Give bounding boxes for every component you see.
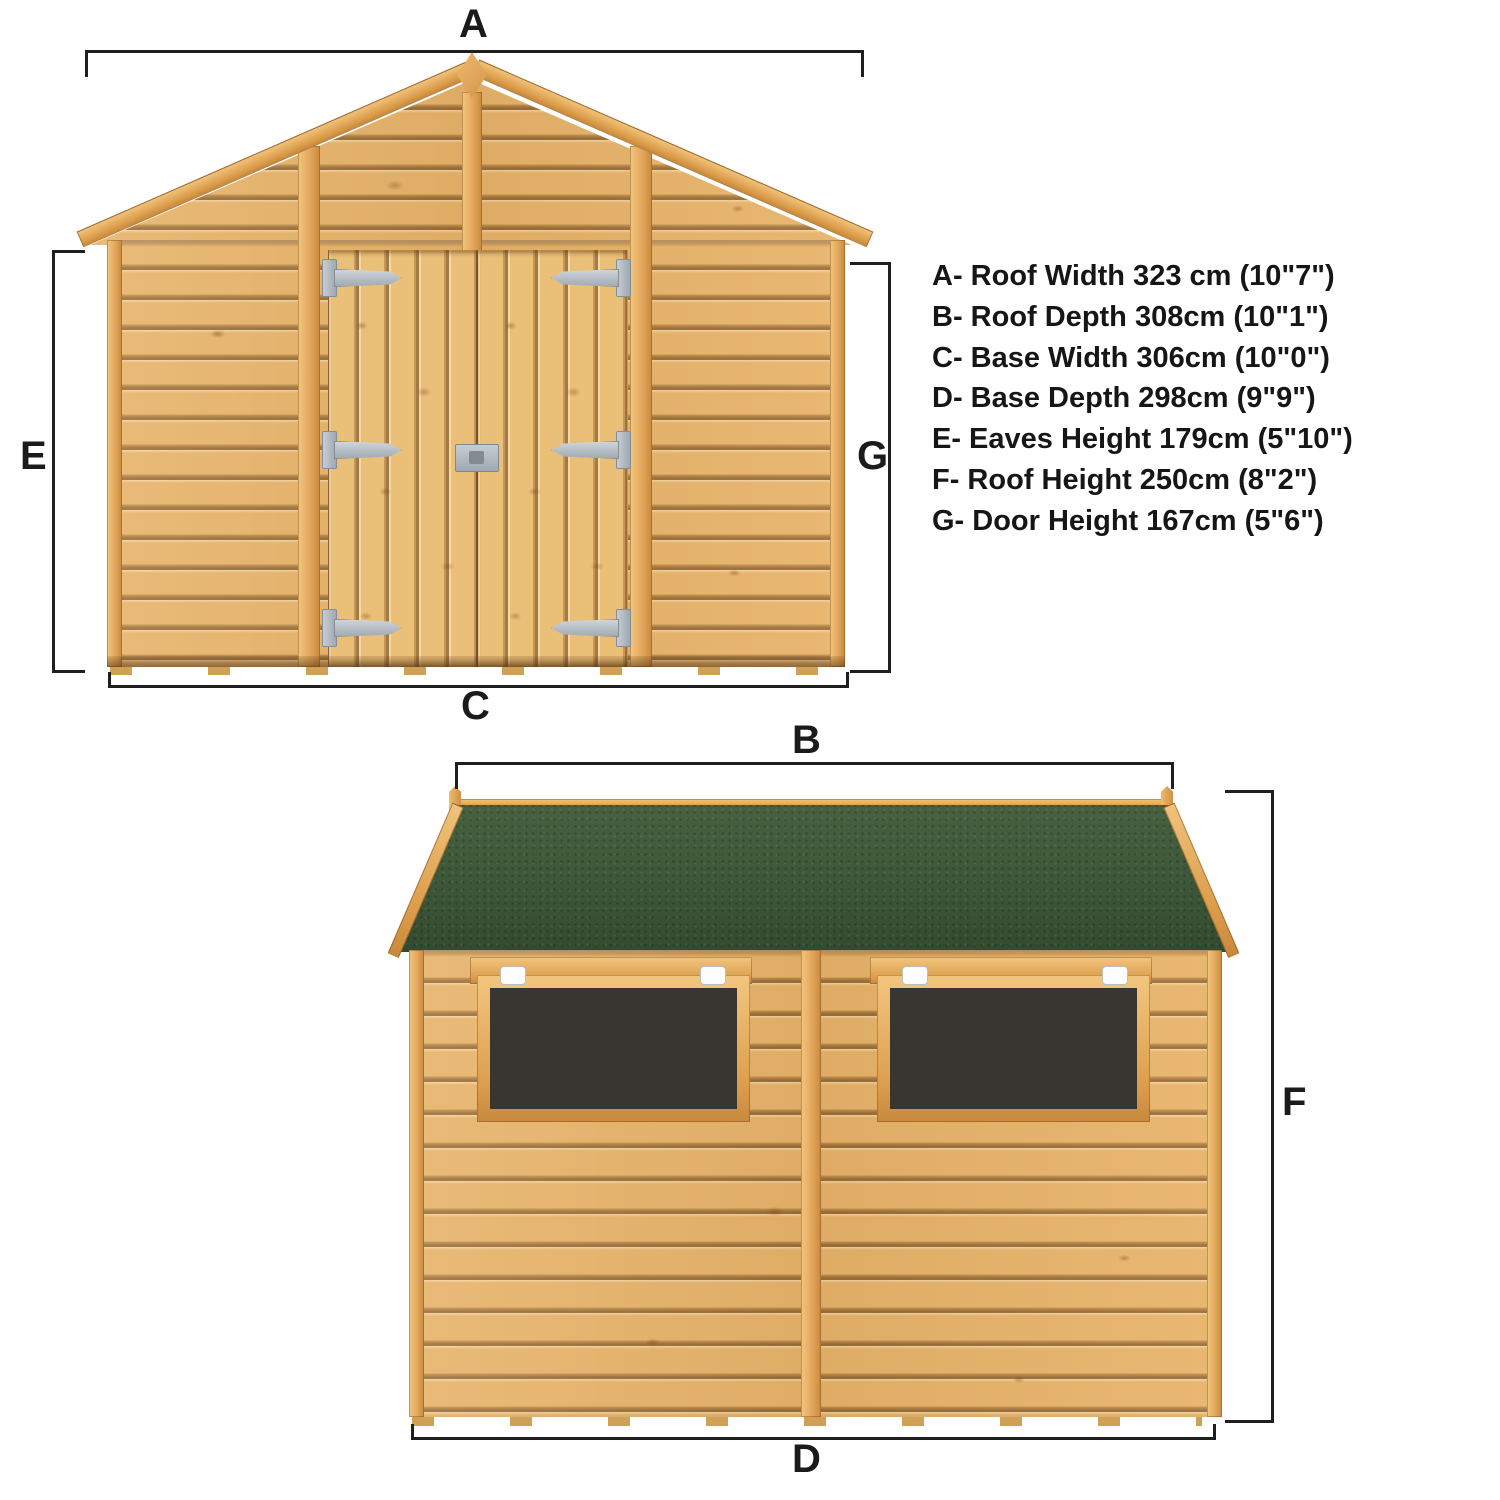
window-latch [500,966,526,985]
side-corner-trim-right [1207,950,1222,1417]
dimension-list-item: B- Roof Depth 308cm (10"1") [932,297,1353,338]
dim-label-roof-width: A [459,4,488,44]
dim-label-roof-height: F [1282,1082,1306,1122]
dimension-list-item: D- Base Depth 298cm (9"9") [932,378,1353,419]
dimension-list-item: F- Roof Height 250cm (8"2") [932,460,1353,501]
front-gable-trim-right [630,146,652,667]
dim-label-eaves-height: E [20,436,47,476]
front-corner-trim-left [107,240,122,667]
front-gable-trim-left [298,146,320,667]
hinge-strap [334,619,402,637]
window-glass-left [490,988,737,1109]
front-corner-trim-right [830,240,845,667]
window-latch [700,966,726,985]
dimension-list: A- Roof Width 323 cm (10"7") B- Roof Dep… [932,256,1353,542]
dim-label-base-depth: D [792,1439,821,1479]
dim-label-roof-depth: B [792,720,821,760]
hinge-strap [334,441,402,459]
dimension-list-item: G- Door Height 167cm (5"6") [932,501,1353,542]
side-corner-trim-left [409,950,424,1417]
dim-bracket-roof-depth [455,762,1174,789]
dimension-list-item: A- Roof Width 323 cm (10"7") [932,256,1353,297]
dim-bracket-roof-height [1225,790,1274,1423]
hinge-strap [334,269,402,287]
dimension-list-item: C- Base Width 306cm (10"0") [932,338,1353,379]
door-lock [455,444,499,472]
door-hinge [322,259,402,295]
door-hinge [551,431,631,467]
roof-felt [394,805,1231,952]
side-center-trim [801,950,821,1417]
shed-dimensions-diagram: A E G C A- Roof Width 323 cm (10"7") B- … [0,0,1500,1500]
lock-keep [469,451,484,464]
dim-label-door-height: G [857,436,888,476]
hinge-strap [551,441,619,459]
front-gable-trim-center [462,92,482,252]
door-hinge [551,259,631,295]
window-latch [902,966,928,985]
shed-side-view: B F D [380,720,1300,1500]
hinge-strap [551,269,619,287]
dim-bracket-eaves-height [52,250,85,673]
door-hinge [322,609,402,645]
shed-front-view: A E G C [0,0,900,720]
front-base-rail [107,656,845,667]
dimension-list-item: E- Eaves Height 179cm (5"10") [932,419,1353,460]
door-hinge [551,609,631,645]
door-hinge [322,431,402,467]
window-glass-right [890,988,1137,1109]
hinge-strap [551,619,619,637]
window-latch [1102,966,1128,985]
dim-bracket-roof-width [85,50,864,77]
